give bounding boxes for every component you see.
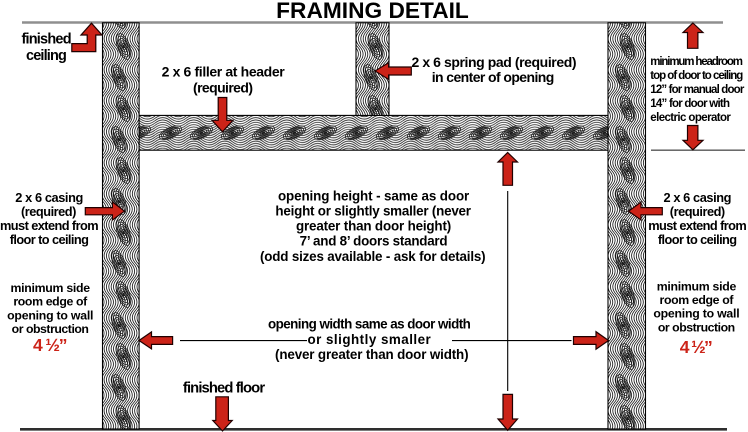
svg-text:or slightly smaller: or slightly smaller xyxy=(307,332,431,347)
svg-text:minimum side: minimum side xyxy=(657,279,737,293)
svg-text:minimum side: minimum side xyxy=(11,281,91,295)
svg-text:greater than door height): greater than door height) xyxy=(296,218,451,233)
svg-text:floor to ceiling: floor to ceiling xyxy=(10,232,89,247)
svg-text:(never greater than door width: (never greater than door width) xyxy=(275,347,469,362)
svg-text:2 x 6 filler at header: 2 x 6 filler at header xyxy=(162,64,286,80)
svg-text:room edge of: room edge of xyxy=(13,295,88,309)
svg-text:opening to wall: opening to wall xyxy=(653,307,739,321)
svg-text:opening width same as door wid: opening width same as door width xyxy=(268,317,471,332)
svg-text:14” for door with: 14” for door with xyxy=(650,98,730,110)
svg-text:2 x 6 casing: 2 x 6 casing xyxy=(664,190,732,205)
svg-text:2 x 6 spring pad (required): 2 x 6 spring pad (required) xyxy=(412,54,577,70)
svg-text:4 ½”: 4 ½” xyxy=(33,335,68,355)
svg-text:(odd sizes available - ask for: (odd sizes available - ask for details) xyxy=(260,249,486,264)
svg-text:in center of opening: in center of opening xyxy=(432,69,555,85)
svg-text:2 x 6 casing: 2 x 6 casing xyxy=(15,190,83,205)
svg-text:opening to wall: opening to wall xyxy=(7,308,93,322)
svg-text:7’ and 8’ doors standard: 7’ and 8’ doors standard xyxy=(300,233,448,248)
svg-text:height or slightly smaller (ne: height or slightly smaller (never xyxy=(275,203,471,218)
svg-text:(required): (required) xyxy=(670,204,725,219)
svg-text:finished: finished xyxy=(21,31,71,47)
svg-text:4 ½”: 4 ½” xyxy=(680,337,713,357)
svg-text:finished floor: finished floor xyxy=(183,380,265,396)
svg-text:opening height - same as door: opening height - same as door xyxy=(278,188,470,203)
svg-text:floor to ceiling: floor to ceiling xyxy=(658,232,737,247)
svg-text:minimum headroom: minimum headroom xyxy=(650,56,743,68)
svg-text:or obstruction: or obstruction xyxy=(658,320,735,334)
svg-text:(required): (required) xyxy=(193,79,253,95)
svg-text:FRAMING DETAIL: FRAMING DETAIL xyxy=(276,0,469,23)
svg-text:top of door to ceiling: top of door to ceiling xyxy=(650,70,743,82)
svg-text:room edge of: room edge of xyxy=(660,293,735,307)
svg-text:(required): (required) xyxy=(21,204,76,219)
svg-text:12” for manual door: 12” for manual door xyxy=(650,84,745,96)
svg-text:electric operator: electric operator xyxy=(650,112,731,124)
svg-text:ceiling: ceiling xyxy=(26,48,67,64)
